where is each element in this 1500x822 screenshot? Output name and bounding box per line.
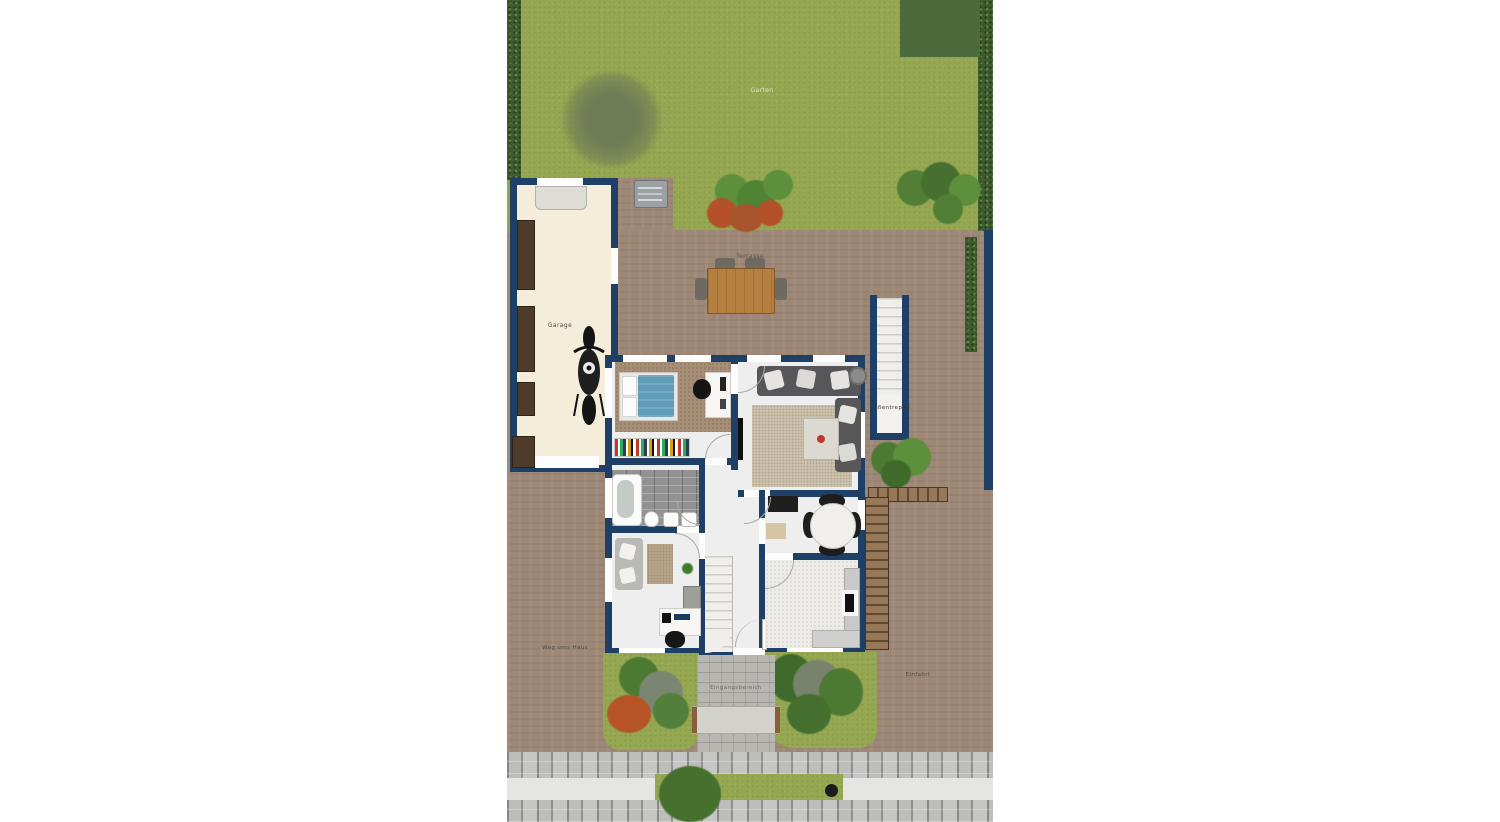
office-chair bbox=[665, 631, 685, 648]
front-bushes-left bbox=[605, 655, 697, 743]
garage-shelf bbox=[517, 306, 535, 372]
entrance-label: Eingangsbereich bbox=[687, 686, 785, 692]
window bbox=[675, 355, 711, 362]
staircase bbox=[705, 556, 733, 652]
sink bbox=[663, 512, 679, 527]
window bbox=[813, 355, 845, 362]
hedge-right-lower bbox=[965, 237, 977, 352]
dining-table bbox=[810, 503, 856, 549]
outdoor-staircase bbox=[862, 295, 912, 440]
window bbox=[605, 478, 612, 518]
bathtub bbox=[612, 474, 642, 526]
side-path-label: Weg ums Haus bbox=[525, 646, 605, 652]
toilet bbox=[644, 511, 659, 527]
terrace-table bbox=[707, 268, 775, 314]
window bbox=[605, 368, 612, 418]
grill bbox=[634, 180, 668, 208]
verge-bush bbox=[659, 766, 721, 822]
verge-tree-well bbox=[825, 784, 838, 797]
sofa-top bbox=[757, 366, 861, 396]
garage-door-leaf-top bbox=[535, 186, 587, 210]
window bbox=[747, 355, 781, 362]
office-rug bbox=[647, 544, 673, 584]
office-plant bbox=[682, 563, 693, 574]
front-bushes-right bbox=[767, 650, 875, 742]
outdoor-staircase-label: Außentreppe bbox=[859, 406, 921, 412]
entrance-step bbox=[692, 706, 780, 734]
garden-tree bbox=[559, 72, 664, 167]
house bbox=[605, 355, 865, 655]
window bbox=[605, 558, 612, 602]
hedge-left bbox=[507, 0, 521, 180]
bed bbox=[619, 372, 678, 421]
living-pouf bbox=[849, 367, 867, 385]
terrace-table-set bbox=[693, 256, 789, 314]
boundary-fence-right bbox=[984, 230, 993, 490]
garage-side-door bbox=[611, 248, 618, 284]
office-sofa bbox=[615, 538, 643, 590]
terrace-chair bbox=[695, 278, 707, 300]
terrace-chair bbox=[775, 278, 787, 300]
floorplan-canvas: Außentreppe bbox=[507, 0, 993, 822]
garden-bush-cluster-flowering bbox=[707, 168, 803, 234]
bedroom-bookshelf bbox=[614, 438, 690, 457]
garden-shed-roof bbox=[900, 0, 980, 57]
terrace-label: Terrasse bbox=[710, 254, 790, 260]
terrace-planter-bushes bbox=[867, 438, 947, 502]
bedroom-office-chair bbox=[693, 379, 711, 399]
tv bbox=[738, 418, 743, 460]
window bbox=[623, 355, 667, 362]
dining-sideboard bbox=[768, 496, 798, 512]
garden-label: Garten bbox=[722, 88, 802, 94]
garage-door-top bbox=[537, 178, 583, 186]
cellar-stairs-slats bbox=[865, 497, 889, 650]
garage-shelf bbox=[517, 382, 535, 416]
kitchen-niche bbox=[842, 590, 858, 616]
garage-label: Garage bbox=[535, 323, 585, 329]
coffee-table bbox=[803, 418, 839, 460]
floorplan-screenshot: Außentreppe bbox=[0, 0, 1500, 822]
garage-shelf bbox=[512, 436, 535, 468]
door-mat bbox=[766, 523, 786, 539]
driveway-label: Einfahrt bbox=[888, 673, 948, 679]
kitchen-counter-bottom bbox=[812, 630, 860, 648]
garage-shelf bbox=[517, 220, 535, 290]
garden-bush-cluster-right bbox=[897, 162, 983, 230]
office-cabinet bbox=[683, 586, 701, 610]
front-door-opening bbox=[733, 648, 765, 655]
entrance-path bbox=[697, 655, 775, 753]
motorcycle bbox=[570, 324, 608, 428]
